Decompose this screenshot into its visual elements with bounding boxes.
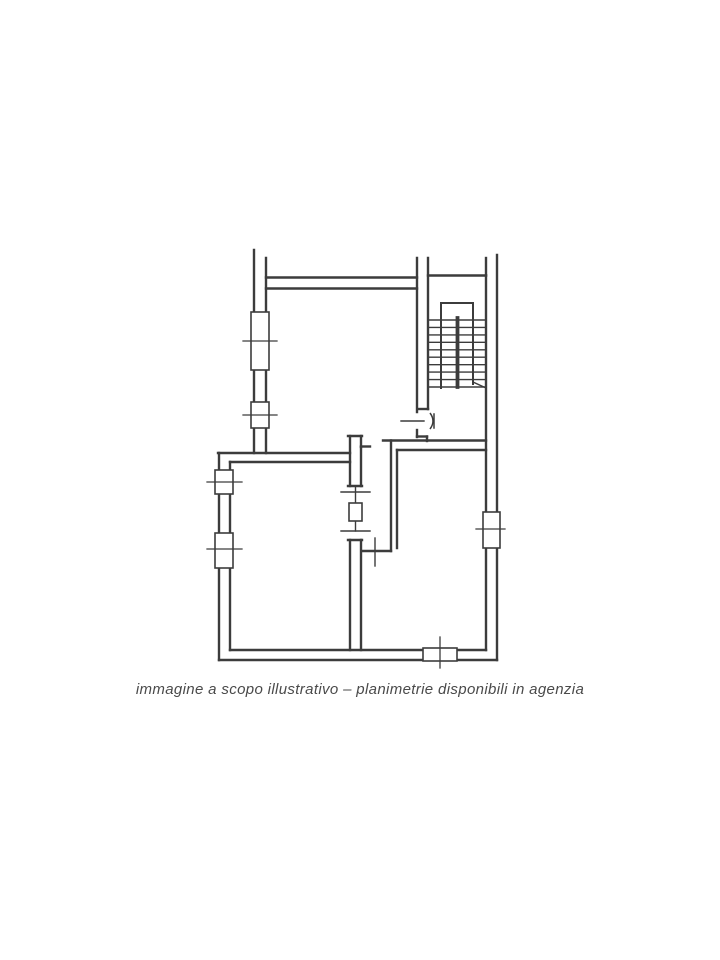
real-estate-plan-page: immagine a scopo illustrativo – planimet…	[0, 0, 720, 960]
window-lower-left-2	[207, 533, 242, 568]
entry-door-leaf	[430, 413, 433, 429]
window-bottom	[423, 637, 457, 668]
window-upper-left-1	[243, 312, 277, 370]
caption-text: immagine a scopo illustrativo – planimet…	[0, 680, 720, 700]
doors-group	[341, 382, 486, 566]
window-lower-left-1	[207, 470, 242, 494]
stairs-group	[428, 303, 486, 388]
floor-plan-image	[0, 0, 720, 960]
window-upper-left-2	[243, 402, 277, 428]
pocket-door-rect	[349, 503, 362, 521]
floor-plan-svg	[0, 0, 720, 960]
window-right	[476, 512, 505, 548]
